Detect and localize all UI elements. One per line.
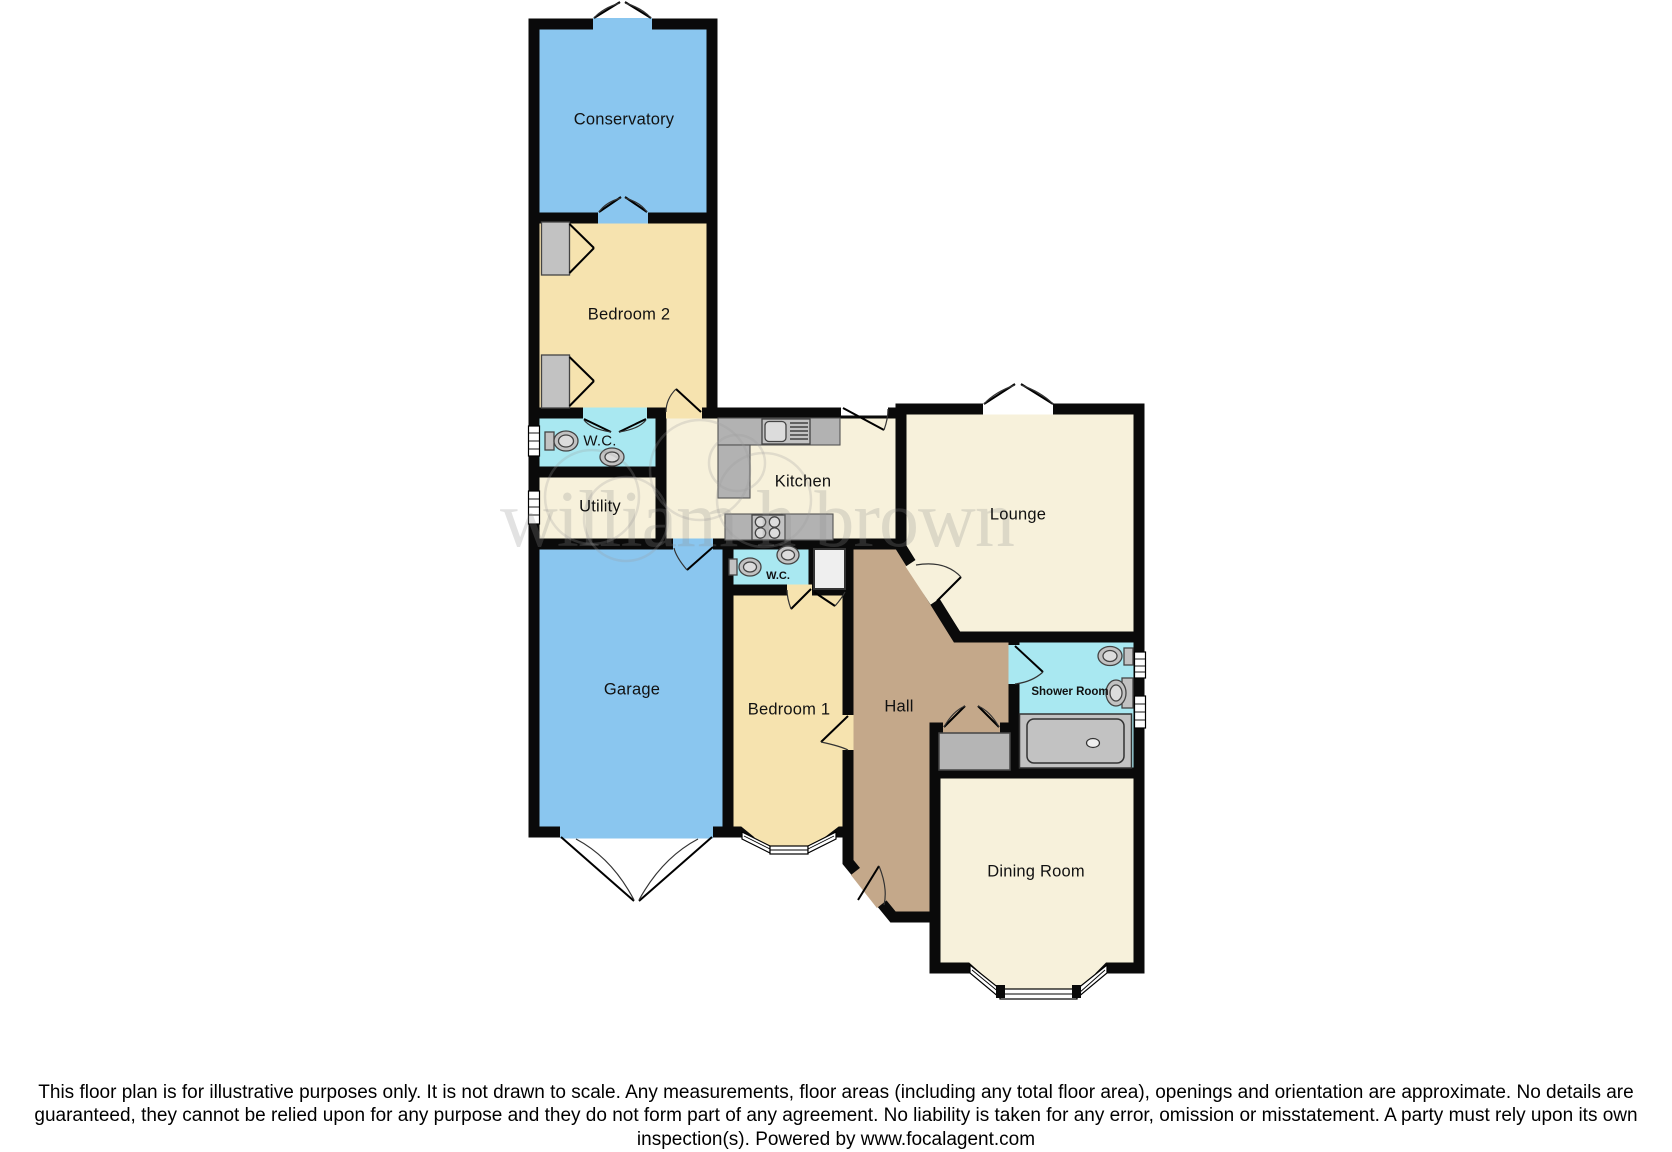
room-label-hall: Hall <box>884 698 913 717</box>
toilet-icon <box>545 431 578 451</box>
room-label-bedroom2: Bedroom 2 <box>588 306 671 325</box>
shower-tray <box>1020 714 1132 768</box>
room-label-dining: Dining Room <box>987 863 1085 882</box>
bedroom1-bay-window <box>740 826 840 855</box>
hall-cupboard <box>939 733 1010 770</box>
room-label-wc-upper: W.C. <box>583 433 616 450</box>
room-label-kitchen: Kitchen <box>775 473 831 492</box>
shower-window-1 <box>1135 652 1146 678</box>
shower-window-2 <box>1135 696 1146 728</box>
room-label-conservatory: Conservatory <box>574 111 675 130</box>
toilet-icon <box>1098 647 1133 666</box>
room-label-bedroom1: Bedroom 1 <box>748 701 831 720</box>
room-label-garage: Garage <box>604 681 660 700</box>
wc-window <box>529 426 540 456</box>
watermark-text: william h brown <box>500 476 1014 564</box>
kitchen-sink-icon <box>762 419 810 444</box>
floorplan-canvas: william h brown Conservatory Bedroom 2 W… <box>0 0 1672 1152</box>
room-label-lounge: Lounge <box>990 506 1046 525</box>
room-label-shower: Shower Room <box>1031 686 1108 698</box>
room-label-wc-lower: W.C. <box>766 570 790 582</box>
room-label-utility: Utility <box>579 498 621 517</box>
disclaimer-text: This floor plan is for illustrative purp… <box>0 1081 1672 1152</box>
floor-plan-svg: william h brown <box>0 0 1672 1152</box>
dining-bay-window <box>968 962 1107 1000</box>
sink-icon <box>1106 678 1133 708</box>
